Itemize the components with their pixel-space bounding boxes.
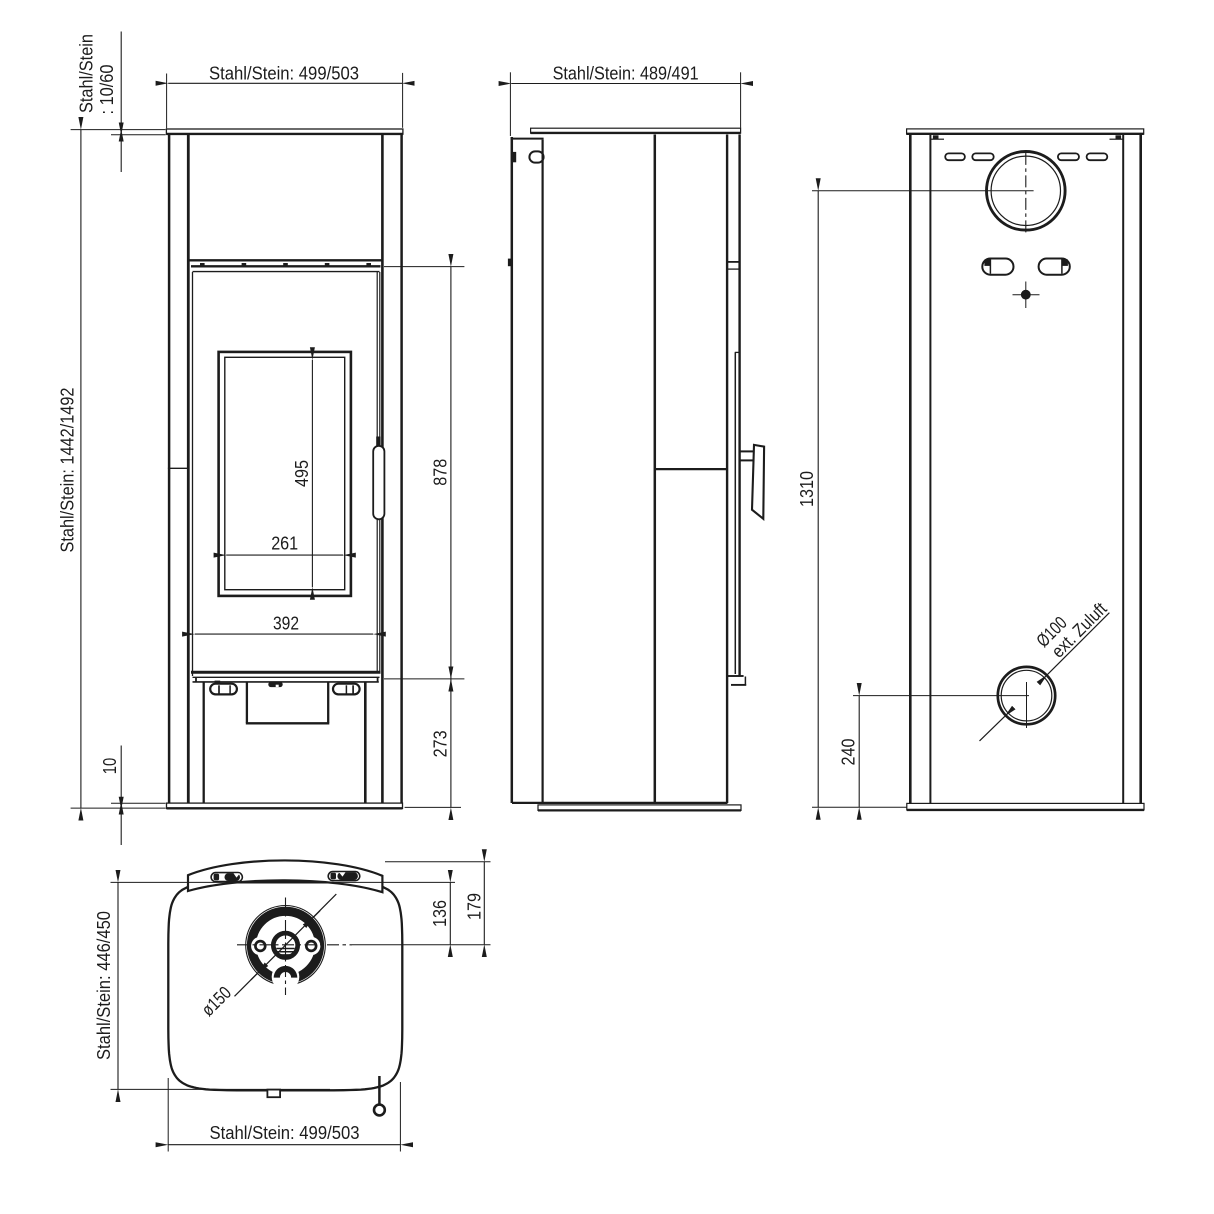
svg-text:136: 136 [430, 900, 450, 927]
svg-text:495: 495 [292, 460, 312, 487]
svg-text:Stahl/Stein: 489/491: Stahl/Stein: 489/491 [553, 64, 699, 84]
svg-text:261: 261 [271, 533, 298, 553]
svg-text:878: 878 [430, 459, 450, 486]
svg-text:Stahl/Stein: 1442/1492: Stahl/Stein: 1442/1492 [58, 388, 78, 553]
svg-text:10: 10 [100, 758, 120, 775]
svg-text:179: 179 [465, 893, 485, 920]
svg-text:273: 273 [430, 730, 450, 757]
svg-text:Stahl/Stein: 499/503: Stahl/Stein: 499/503 [209, 63, 359, 83]
svg-text:240: 240 [839, 739, 859, 766]
svg-text:1310: 1310 [797, 471, 817, 507]
svg-text:: 10/60: : 10/60 [97, 65, 117, 115]
svg-text:Stahl/Stein: Stahl/Stein [77, 34, 97, 113]
svg-text:Stahl/Stein: 499/503: Stahl/Stein: 499/503 [210, 1123, 360, 1143]
svg-text:Stahl/Stein: 446/450: Stahl/Stein: 446/450 [94, 911, 114, 1060]
svg-text:392: 392 [273, 613, 299, 633]
